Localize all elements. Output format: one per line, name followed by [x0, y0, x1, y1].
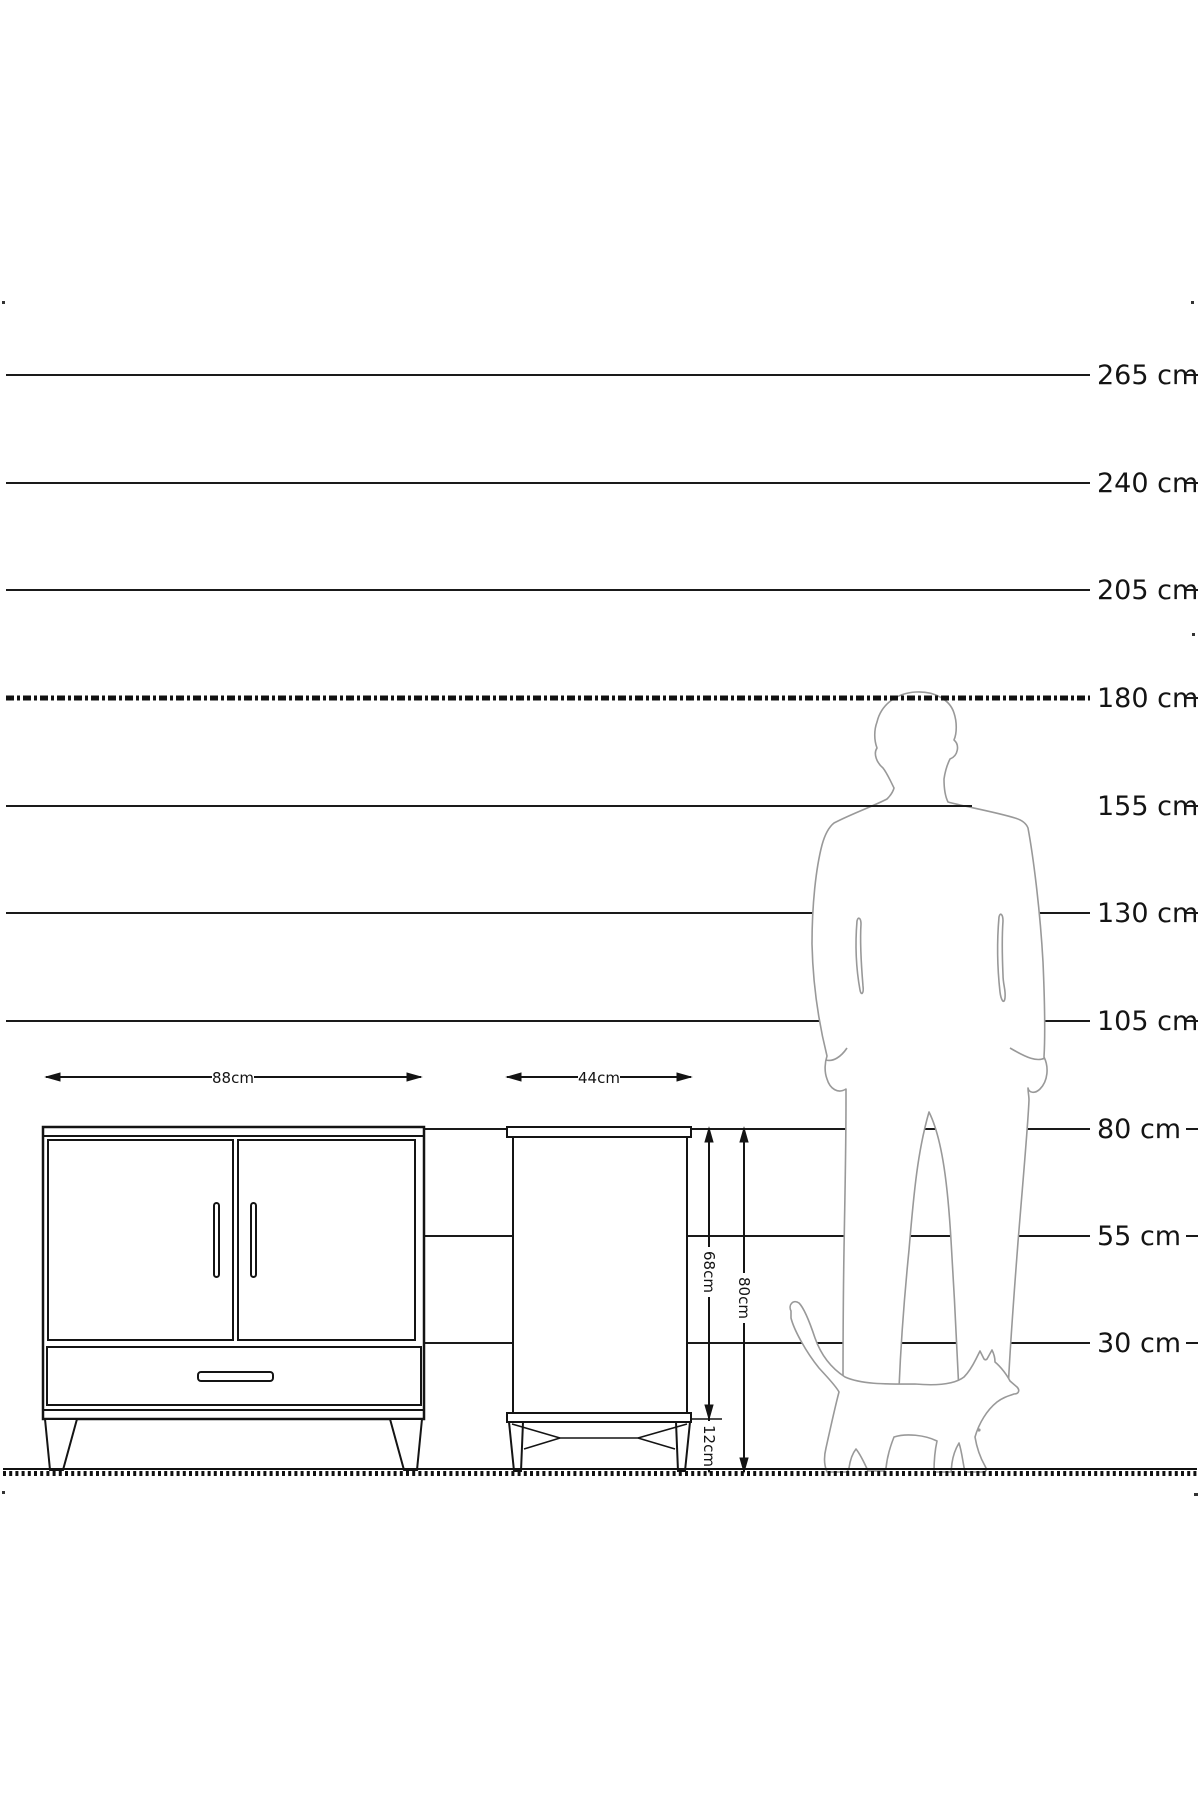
scale-label-105: 105 cm — [1097, 1006, 1198, 1037]
man-silhouette — [812, 692, 1047, 1392]
scale-label-55: 55 cm — [1097, 1221, 1181, 1252]
dim-arrow — [705, 1128, 713, 1142]
scale-label-180: 180 cm — [1097, 683, 1198, 714]
dim-arrow — [46, 1073, 60, 1081]
body-height-label: 68cm — [700, 1251, 718, 1293]
front-cabinet-right-door — [238, 1140, 415, 1340]
dim-arrow — [740, 1128, 748, 1142]
right-door-handle — [251, 1203, 256, 1277]
cabinet-side-view — [507, 1127, 691, 1471]
scale-labels: 265 cm240 cm205 cm180 cm155 cm130 cm105 … — [1097, 360, 1198, 1359]
scale-label-240: 240 cm — [1097, 468, 1198, 499]
total-height-label: 80cm — [735, 1277, 753, 1319]
scale-label-155: 155 cm — [1097, 791, 1198, 822]
scale-label-130: 130 cm — [1097, 898, 1198, 929]
side-cabinet-right-leg — [676, 1422, 690, 1471]
front-cabinet-left-door — [48, 1140, 233, 1340]
front-width-label: 88cm — [212, 1069, 254, 1087]
furniture-dimension-diagram: 88cm 44cm 68cm 80cm 12cm — [0, 0, 1200, 1800]
dim-arrow — [677, 1073, 691, 1081]
front-cabinet-right-leg — [390, 1419, 422, 1470]
dim-arrow — [705, 1405, 713, 1419]
scale-label-205: 205 cm — [1097, 575, 1198, 606]
diagram-canvas: 88cm 44cm 68cm 80cm 12cm — [0, 0, 1200, 1800]
drawer-handle — [198, 1372, 273, 1381]
man-outline — [812, 692, 1047, 1392]
scale-label-80: 80 cm — [1097, 1114, 1181, 1145]
cabinet-front-view — [43, 1127, 424, 1470]
front-cabinet-left-leg — [45, 1419, 77, 1470]
dim-arrow — [507, 1073, 521, 1081]
scale-label-265: 265 cm — [1097, 360, 1198, 391]
side-cabinet-left-leg — [509, 1422, 523, 1471]
side-cabinet-top-band — [507, 1127, 691, 1137]
side-depth-label: 44cm — [578, 1069, 620, 1087]
side-cabinet-bottom-band — [507, 1413, 691, 1422]
cat-dot — [977, 1428, 980, 1431]
ground-line — [3, 1469, 1197, 1474]
side-cabinet-panel — [513, 1137, 687, 1413]
left-door-handle — [214, 1203, 219, 1277]
leg-height-label: 12cm — [700, 1425, 718, 1467]
scale-label-30: 30 cm — [1097, 1328, 1181, 1359]
side-cabinet-leg-braces — [512, 1424, 687, 1449]
dim-arrow — [407, 1073, 421, 1081]
